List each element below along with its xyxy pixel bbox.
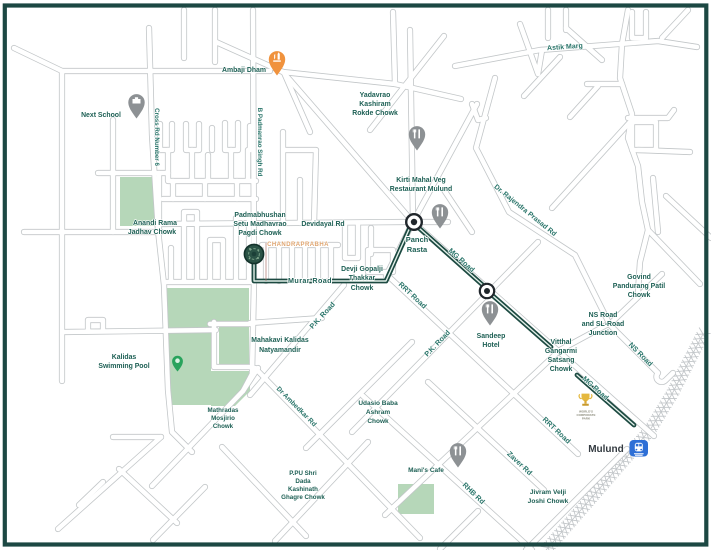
svg-text:B Padmanrao Singh Rd: B Padmanrao Singh Rd [256, 108, 263, 177]
svg-text:Cross Rd Number 6: Cross Rd Number 6 [153, 108, 160, 166]
svg-text:Junction: Junction [589, 330, 618, 337]
svg-text:Mathradas: Mathradas [208, 407, 240, 414]
svg-text:Anandi Rama: Anandi Rama [133, 220, 177, 227]
svg-text:Vitthal: Vitthal [551, 339, 572, 346]
svg-text:Pagdi Chowk: Pagdi Chowk [238, 230, 281, 237]
svg-text:Dada: Dada [295, 478, 311, 485]
svg-text:Natyamandir: Natyamandir [259, 347, 301, 354]
svg-text:Murar Road: Murar Road [288, 276, 332, 285]
svg-text:Setu Madhavrao: Setu Madhavrao [233, 221, 286, 228]
svg-text:Mosjirio: Mosjirio [211, 415, 235, 422]
svg-text:Kashiram: Kashiram [359, 101, 390, 108]
svg-text:P.PU Shri: P.PU Shri [289, 470, 317, 477]
svg-text:Restaurant Mulund: Restaurant Mulund [390, 186, 452, 193]
svg-text:Jivram Velji: Jivram Velji [530, 489, 566, 496]
svg-text:Satsang: Satsang [548, 357, 575, 364]
svg-text:Next School: Next School [81, 112, 121, 119]
svg-text:Devidayal Rd: Devidayal Rd [301, 221, 344, 228]
svg-text:Sandeep: Sandeep [477, 333, 506, 340]
svg-text:Thakkar: Thakkar [349, 275, 376, 282]
svg-text:Ashram: Ashram [366, 409, 390, 416]
svg-text:Udasio Baba: Udasio Baba [358, 400, 398, 407]
svg-text:Chowk: Chowk [628, 292, 651, 299]
svg-text:NS Road: NS Road [589, 312, 618, 319]
svg-text:Chowk: Chowk [367, 418, 389, 425]
svg-text:Rasta: Rasta [407, 245, 428, 254]
svg-text:Kirti Mahal Veg: Kirti Mahal Veg [396, 177, 445, 184]
svg-text:Chowk: Chowk [550, 366, 573, 373]
svg-text:Gangarmi: Gangarmi [545, 348, 577, 355]
svg-text:Kashinath: Kashinath [288, 486, 318, 493]
svg-text:PARK: PARK [582, 417, 591, 421]
svg-text:Panch: Panch [406, 235, 429, 244]
svg-text:Chowk: Chowk [351, 285, 374, 292]
svg-text:Mahakavi Kalidas: Mahakavi Kalidas [251, 337, 309, 344]
svg-text:and SL-Road: and SL-Road [582, 321, 625, 328]
svg-text:CHANDRAPRABHA: CHANDRAPRABHA [267, 242, 329, 248]
svg-text:Padmabhushan: Padmabhushan [234, 212, 285, 219]
svg-text:Govind: Govind [627, 274, 651, 281]
svg-text:Yadavrao: Yadavrao [360, 92, 391, 99]
svg-text:Jadhav Chowk: Jadhav Chowk [128, 229, 176, 236]
svg-text:Chowk: Chowk [213, 423, 234, 430]
svg-text:Hotel: Hotel [482, 342, 499, 349]
svg-text:Mani's Cafe: Mani's Cafe [408, 467, 444, 474]
svg-text:Pandurang Patil: Pandurang Patil [613, 283, 666, 290]
svg-text:Devji Gopalji: Devji Gopalji [341, 266, 383, 273]
svg-text:Rokde Chowk: Rokde Chowk [352, 110, 398, 117]
svg-text:Mulund: Mulund [588, 444, 624, 455]
svg-text:Swimming Pool: Swimming Pool [98, 363, 149, 370]
svg-text:Kalidas: Kalidas [112, 354, 137, 361]
svg-text:Ghagre Chowk: Ghagre Chowk [281, 494, 325, 501]
svg-text:Joshi Chowk: Joshi Chowk [528, 498, 569, 505]
svg-text:Ambaji Dham: Ambaji Dham [222, 67, 266, 74]
